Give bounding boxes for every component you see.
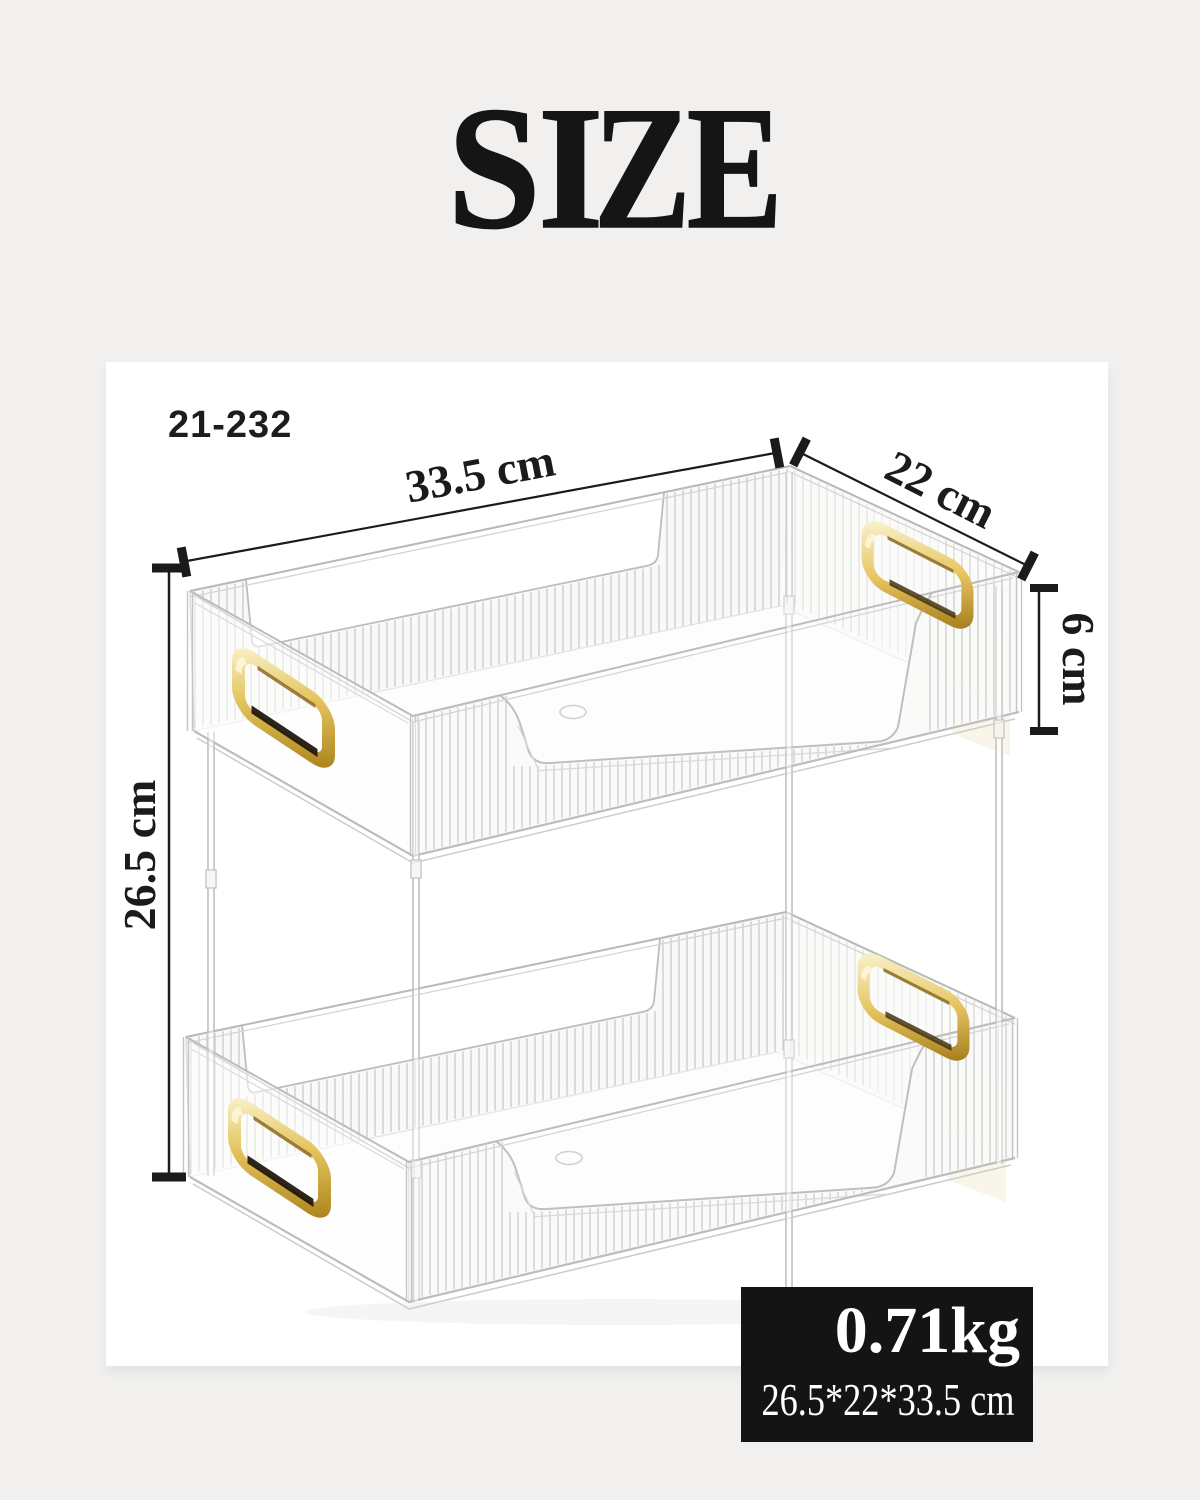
svg-text:26.5*22*33.5 cm: 26.5*22*33.5 cm <box>762 1374 1015 1425</box>
svg-text:6 cm: 6 cm <box>1053 612 1104 705</box>
svg-text:S: S <box>447 72 540 266</box>
svg-text:E: E <box>687 71 783 266</box>
svg-text:Z: Z <box>593 72 691 267</box>
svg-text:33.5 cm: 33.5 cm <box>401 434 559 512</box>
svg-text:0.71kg: 0.71kg <box>835 1294 1020 1367</box>
svg-text:21-232: 21-232 <box>168 404 292 446</box>
svg-text:26.5 cm: 26.5 cm <box>114 780 165 931</box>
